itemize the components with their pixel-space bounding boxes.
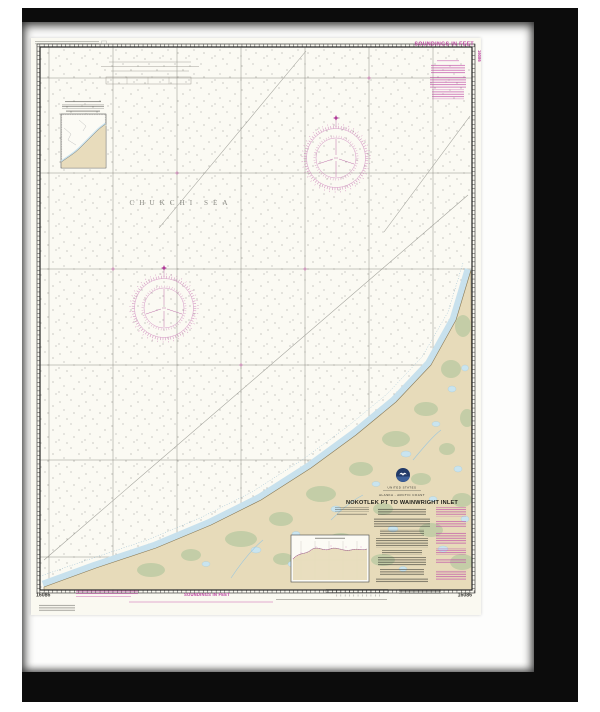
sea-name-label: CHUKCHI SEA: [129, 199, 232, 207]
soundings-note-top: SOUNDINGS IN FEET: [414, 42, 474, 48]
continuation-inset-top-left: [61, 101, 106, 168]
title-notes-text: [374, 508, 430, 583]
chart-number-bottom-right: 16086: [458, 593, 473, 599]
framed-chart-photo: CHUKCHI SEA: [0, 0, 600, 712]
chart-number-right-edge: 16086: [477, 50, 481, 62]
title-region: ALASKA - ARCTIC COAST: [379, 493, 425, 497]
soundings-note-bottom: SOUNDINGS IN FEET: [184, 592, 230, 597]
title-country: UNITED STATES: [388, 486, 417, 490]
continuation-inset-bottom: [291, 535, 369, 582]
left-notes-text: [335, 507, 369, 515]
chart-number-bottom-left: 16086: [36, 593, 51, 599]
noaa-logo: [396, 468, 410, 482]
logo-scale-note-magenta: [76, 590, 138, 597]
corner-fine-print: [39, 605, 75, 612]
chart-paper: CHUKCHI SEA: [31, 38, 481, 615]
publisher-fine-print: [399, 589, 441, 594]
caution-note-block: [430, 61, 466, 100]
chart-title: NOKOTLEK PT TO WAINWRIGHT INLET: [346, 500, 458, 506]
nautical-chart: CHUKCHI SEA: [31, 38, 481, 615]
top-left-margin-text: [35, 41, 107, 44]
